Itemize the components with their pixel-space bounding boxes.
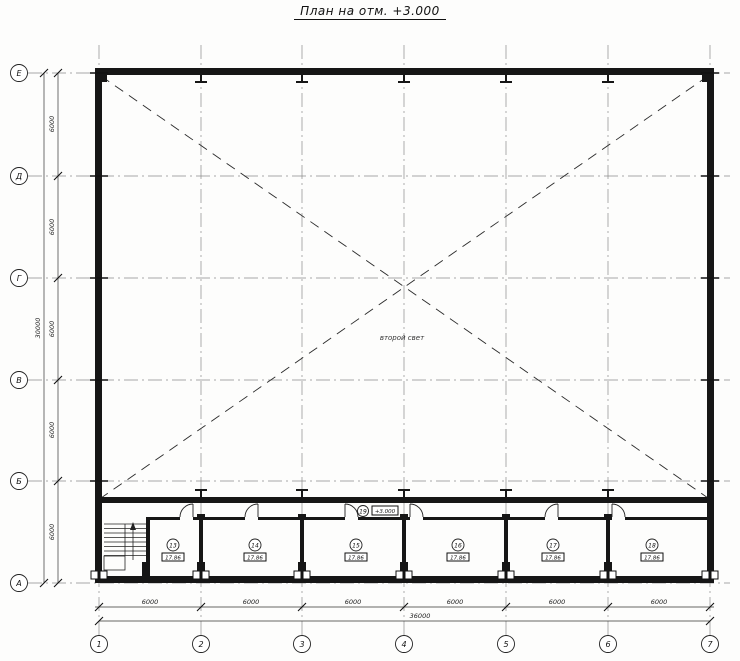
axis-letter: Г [17, 274, 22, 283]
room-number: 14 [251, 543, 259, 550]
room-number: 18 [648, 543, 656, 550]
room-label: 14 17.86 [244, 539, 266, 562]
axis-number: 5 [503, 640, 508, 649]
room-label: 17 17.86 [542, 539, 564, 562]
axis-letter: Б [16, 477, 22, 486]
corridor-number: 19 [359, 509, 367, 516]
corridor-wall [148, 517, 710, 520]
hall-diagonal-braces [101, 76, 708, 498]
corridor-elevation: +3.000 [375, 509, 396, 515]
stair [104, 522, 146, 570]
axis-number: 1 [96, 640, 101, 649]
room-label: 15 17.86 [345, 539, 367, 562]
dim-left: 6000 [48, 116, 56, 133]
dim-bottom: 6000 [243, 598, 260, 606]
wall-right [707, 68, 714, 583]
room-area: 17.86 [348, 556, 364, 562]
walls [95, 68, 714, 583]
room-area: 17.86 [247, 556, 263, 562]
second-light-note: второй свет [380, 334, 425, 342]
dim-left: 6000 [48, 219, 56, 236]
room-label: 18 17.86 [641, 539, 663, 562]
axis-letter: А [15, 579, 21, 588]
room-label: 13 17.86 [162, 539, 184, 562]
room-number: 15 [352, 543, 360, 550]
axis-number: 3 [299, 640, 304, 649]
dim-bottom: 6000 [345, 598, 362, 606]
room-area: 17.86 [165, 556, 181, 562]
dim-bottom: 6000 [651, 598, 668, 606]
dim-left: 6000 [48, 524, 56, 541]
room-number: 16 [454, 543, 462, 550]
room-area: 17.86 [545, 556, 561, 562]
axis-number: 6 [605, 640, 610, 649]
wall-top [95, 68, 714, 75]
left-dimensions: 6000 6000 6000 6000 6000 30000 [34, 69, 62, 587]
room-number: 17 [549, 543, 557, 550]
plan-drawing: второй свет 19 +3.000 13 17.86 14 17.86 … [0, 0, 740, 661]
dim-bottom: 6000 [142, 598, 159, 606]
bottom-dimensions: 6000 6000 6000 6000 6000 6000 36000 [95, 598, 714, 625]
room-partitions [142, 514, 612, 583]
axis-letter: В [16, 376, 22, 385]
dim-left: 6000 [48, 422, 56, 439]
wall-hall-separation [95, 497, 714, 503]
dim-left: 6000 [48, 321, 56, 338]
axis-bubbles-letters: Е Д Г В Б А [11, 65, 28, 592]
stair-arrow-head [130, 522, 136, 530]
column-marks [90, 73, 719, 579]
dim-bottom-overall: 36000 [410, 612, 431, 620]
floor-plan-sheet: План на отм. +3.000 [0, 0, 740, 661]
room-area: 17.86 [644, 556, 660, 562]
dim-left-overall: 30000 [34, 318, 42, 339]
axis-number: 2 [198, 640, 203, 649]
room-area: 17.86 [450, 556, 466, 562]
corridor-label: 19 +3.000 [358, 506, 399, 517]
room-number: 13 [169, 543, 177, 550]
axis-number: 4 [401, 640, 406, 649]
axis-bubbles-numbers: 1 2 3 4 5 6 7 [91, 636, 719, 653]
axis-letter: Д [15, 172, 22, 181]
dim-bottom: 6000 [549, 598, 566, 606]
room-label: 16 17.86 [447, 539, 469, 562]
dim-bottom: 6000 [447, 598, 464, 606]
wall-left [95, 68, 102, 583]
